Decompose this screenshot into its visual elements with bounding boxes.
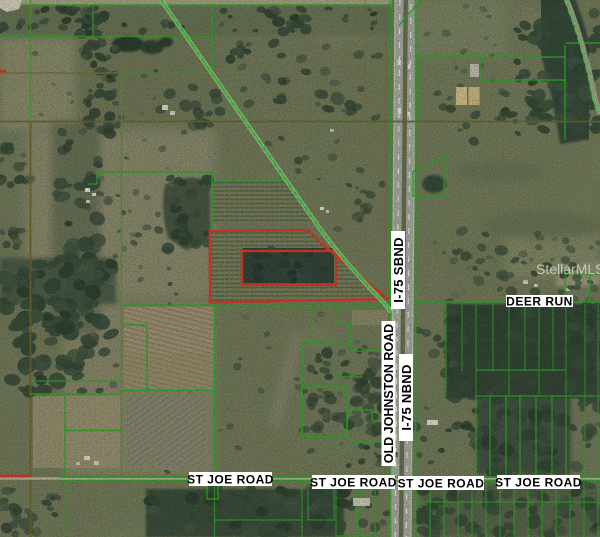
svg-text:ST JOE ROAD: ST JOE ROAD <box>187 473 274 487</box>
svg-text:I-75 SBND: I-75 SBND <box>391 237 406 303</box>
svg-text:I-75 NBND: I-75 NBND <box>399 364 414 430</box>
svg-text:StellarMLS: StellarMLS <box>536 261 600 277</box>
svg-text:DEER RUN: DEER RUN <box>506 295 573 309</box>
svg-text:ST JOE ROAD: ST JOE ROAD <box>310 476 397 490</box>
svg-text:ST JOE ROAD: ST JOE ROAD <box>495 476 582 490</box>
svg-text:ST JOE ROAD: ST JOE ROAD <box>398 477 485 491</box>
svg-text:OLD JOHNSTON ROAD: OLD JOHNSTON ROAD <box>382 324 396 463</box>
